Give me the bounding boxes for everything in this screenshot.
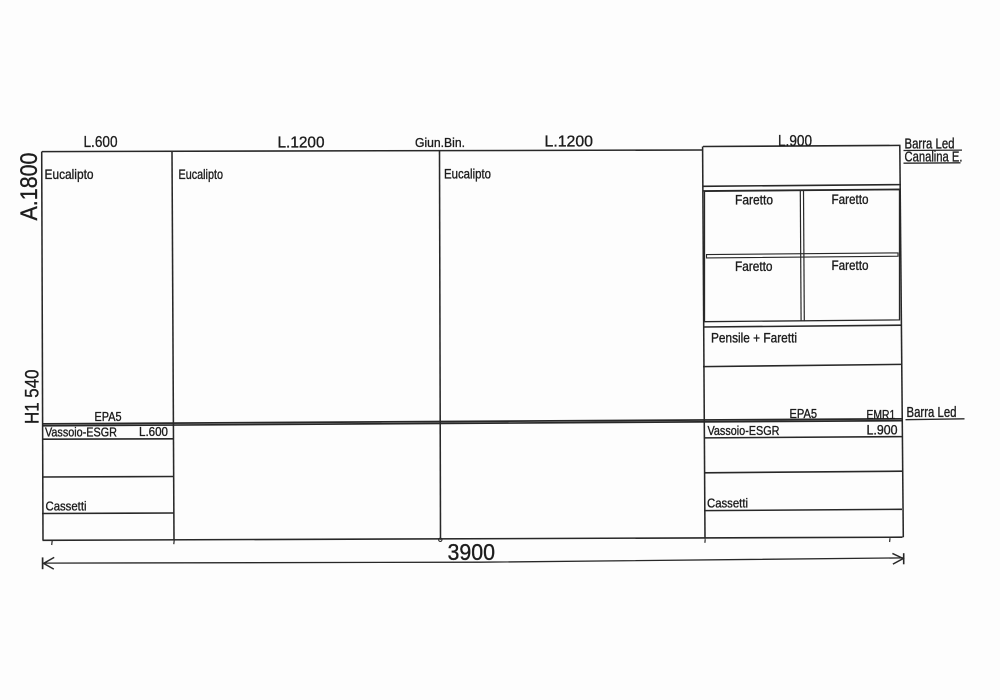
svg-text:Eucalipto: Eucalipto (179, 166, 224, 182)
svg-text:3900: 3900 (448, 539, 496, 565)
svg-text:L.1200: L.1200 (278, 135, 325, 152)
svg-text:EMR1: EMR1 (867, 408, 896, 422)
svg-text:Cassetti: Cassetti (707, 496, 748, 511)
svg-text:Pensile + Faretti: Pensile + Faretti (711, 330, 797, 345)
svg-text:EPA5: EPA5 (790, 407, 818, 421)
svg-text:Canalina E.: Canalina E. (905, 149, 963, 165)
svg-text:Vassoio-ESGR: Vassoio-ESGR (708, 423, 780, 438)
svg-text:A.1800: A.1800 (16, 153, 43, 221)
svg-text:Eucalipto: Eucalipto (444, 166, 491, 182)
svg-text:Eucalipto: Eucalipto (45, 166, 94, 182)
svg-text:L.600: L.600 (84, 134, 118, 151)
svg-text:Faretto: Faretto (832, 258, 869, 273)
svg-text:L.900: L.900 (867, 421, 898, 437)
svg-text:H1 540: H1 540 (23, 370, 44, 425)
svg-text:L.600: L.600 (139, 424, 168, 439)
svg-text:Barra Led: Barra Led (907, 405, 957, 421)
svg-text:EPA5: EPA5 (95, 410, 122, 424)
svg-text:Faretto: Faretto (735, 259, 773, 274)
svg-text:Faretto: Faretto (832, 192, 869, 207)
svg-text:Giun.Bin.: Giun.Bin. (415, 135, 465, 150)
svg-text:Faretto: Faretto (735, 193, 773, 208)
svg-text:L.900: L.900 (778, 133, 812, 150)
svg-text:Cassetti: Cassetti (46, 499, 87, 514)
svg-text:L.1200: L.1200 (545, 133, 594, 150)
svg-text:Vassoio-ESGR: Vassoio-ESGR (45, 424, 117, 439)
